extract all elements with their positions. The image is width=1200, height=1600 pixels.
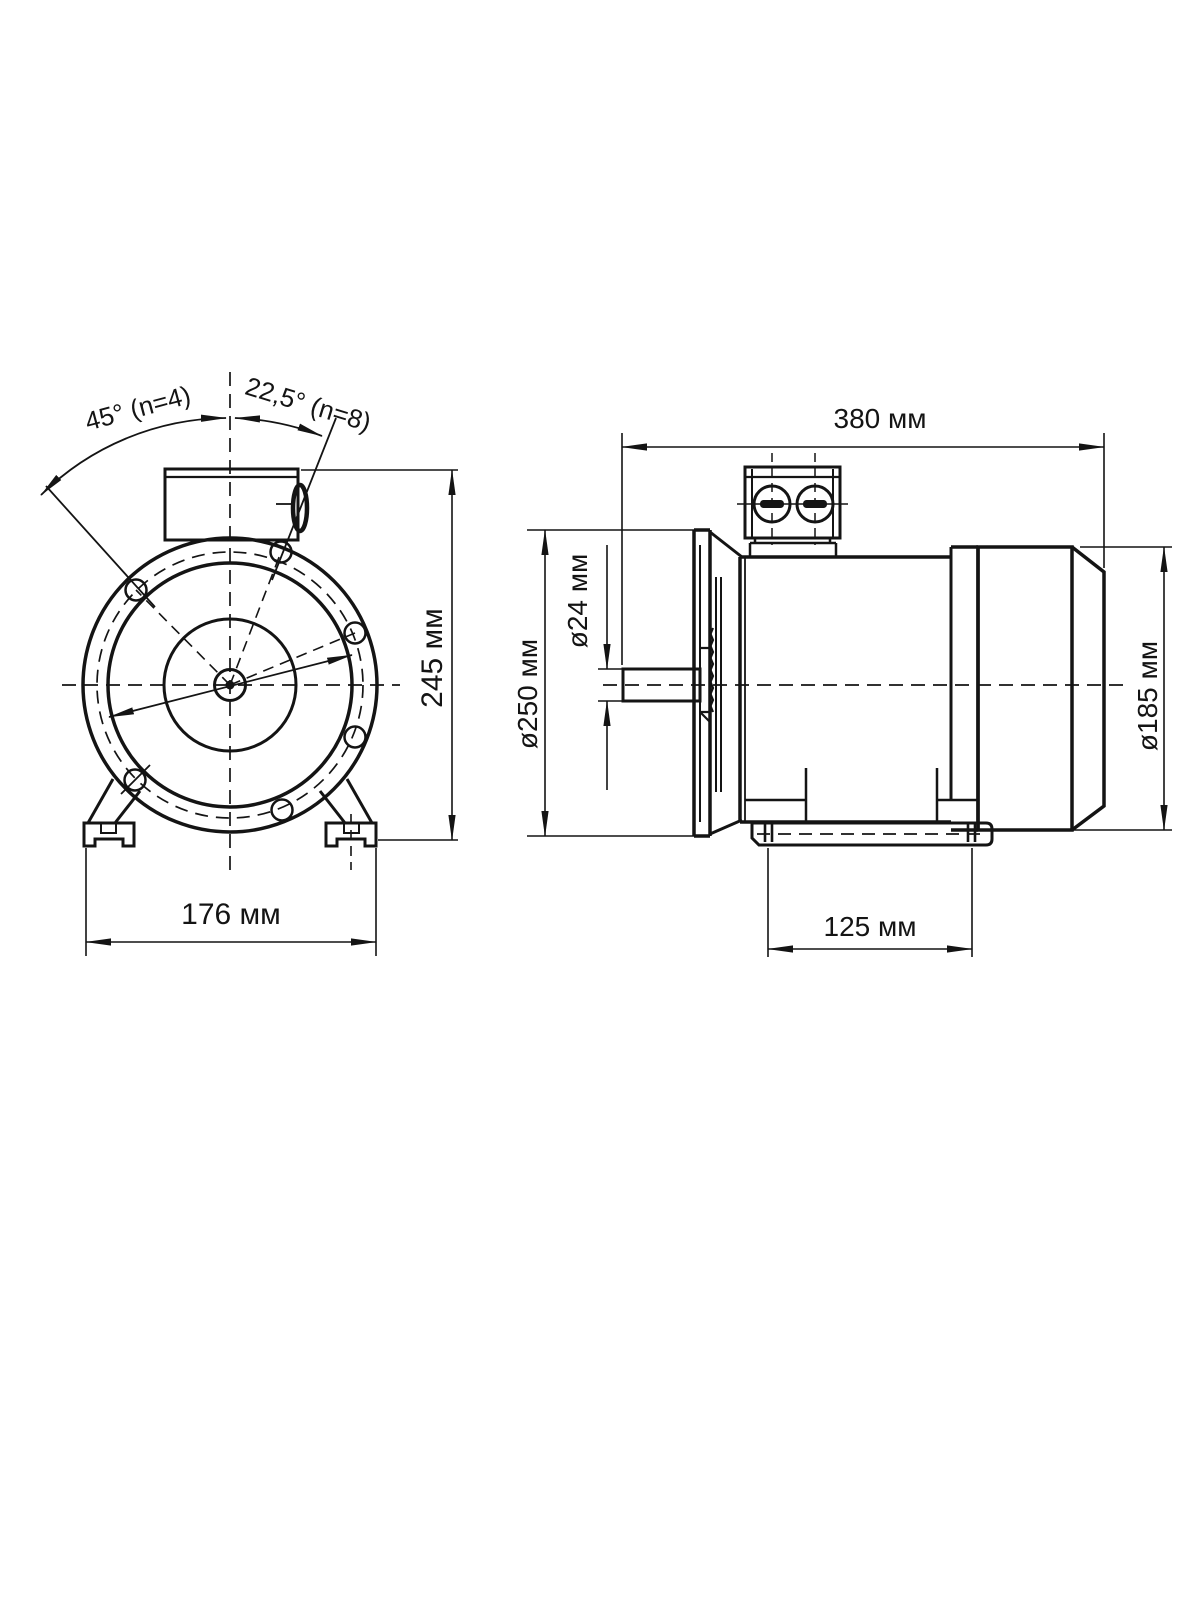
angle-arc-225 (235, 418, 322, 436)
terminal-box-skirt (750, 538, 836, 557)
front-view (41, 372, 458, 956)
side-view (527, 433, 1172, 957)
radial-225-line (272, 418, 336, 580)
angle-arc-45 (41, 418, 226, 495)
terminal-box-side (737, 453, 848, 557)
foot-bolt-left (765, 824, 772, 842)
label-height-245: 245 мм (416, 608, 449, 708)
label-flange-dia-250: ø250 мм (512, 639, 543, 749)
foot-plate (752, 823, 992, 845)
drawing-sheet: 45° (n=4) 22,5° (n=8) 245 мм 176 мм 380 … (0, 0, 1200, 1600)
label-foot-width-176: 176 мм (181, 898, 281, 931)
motor-dimension-drawing: 45° (n=4) 22,5° (n=8) 245 мм 176 мм 380 … (0, 0, 1200, 1600)
foot-webs (745, 768, 977, 823)
dim-250 (527, 530, 700, 836)
fan-cover (978, 547, 1104, 830)
terminal-box-front (165, 469, 307, 540)
bearing-shield (951, 547, 978, 830)
label-length-380: 380 мм (834, 403, 927, 434)
label-angle-225: 22,5° (n=8) (242, 371, 375, 438)
label-angle-45: 45° (n=4) (82, 380, 194, 437)
radial-45-line (46, 486, 155, 607)
motor-body (740, 557, 951, 822)
label-shaft-dia-24: ø24 мм (562, 554, 593, 649)
label-foot-spacing-125: 125 мм (824, 911, 917, 942)
label-housing-dia-185: ø185 мм (1132, 641, 1163, 751)
foot-bolt-right (968, 824, 975, 842)
